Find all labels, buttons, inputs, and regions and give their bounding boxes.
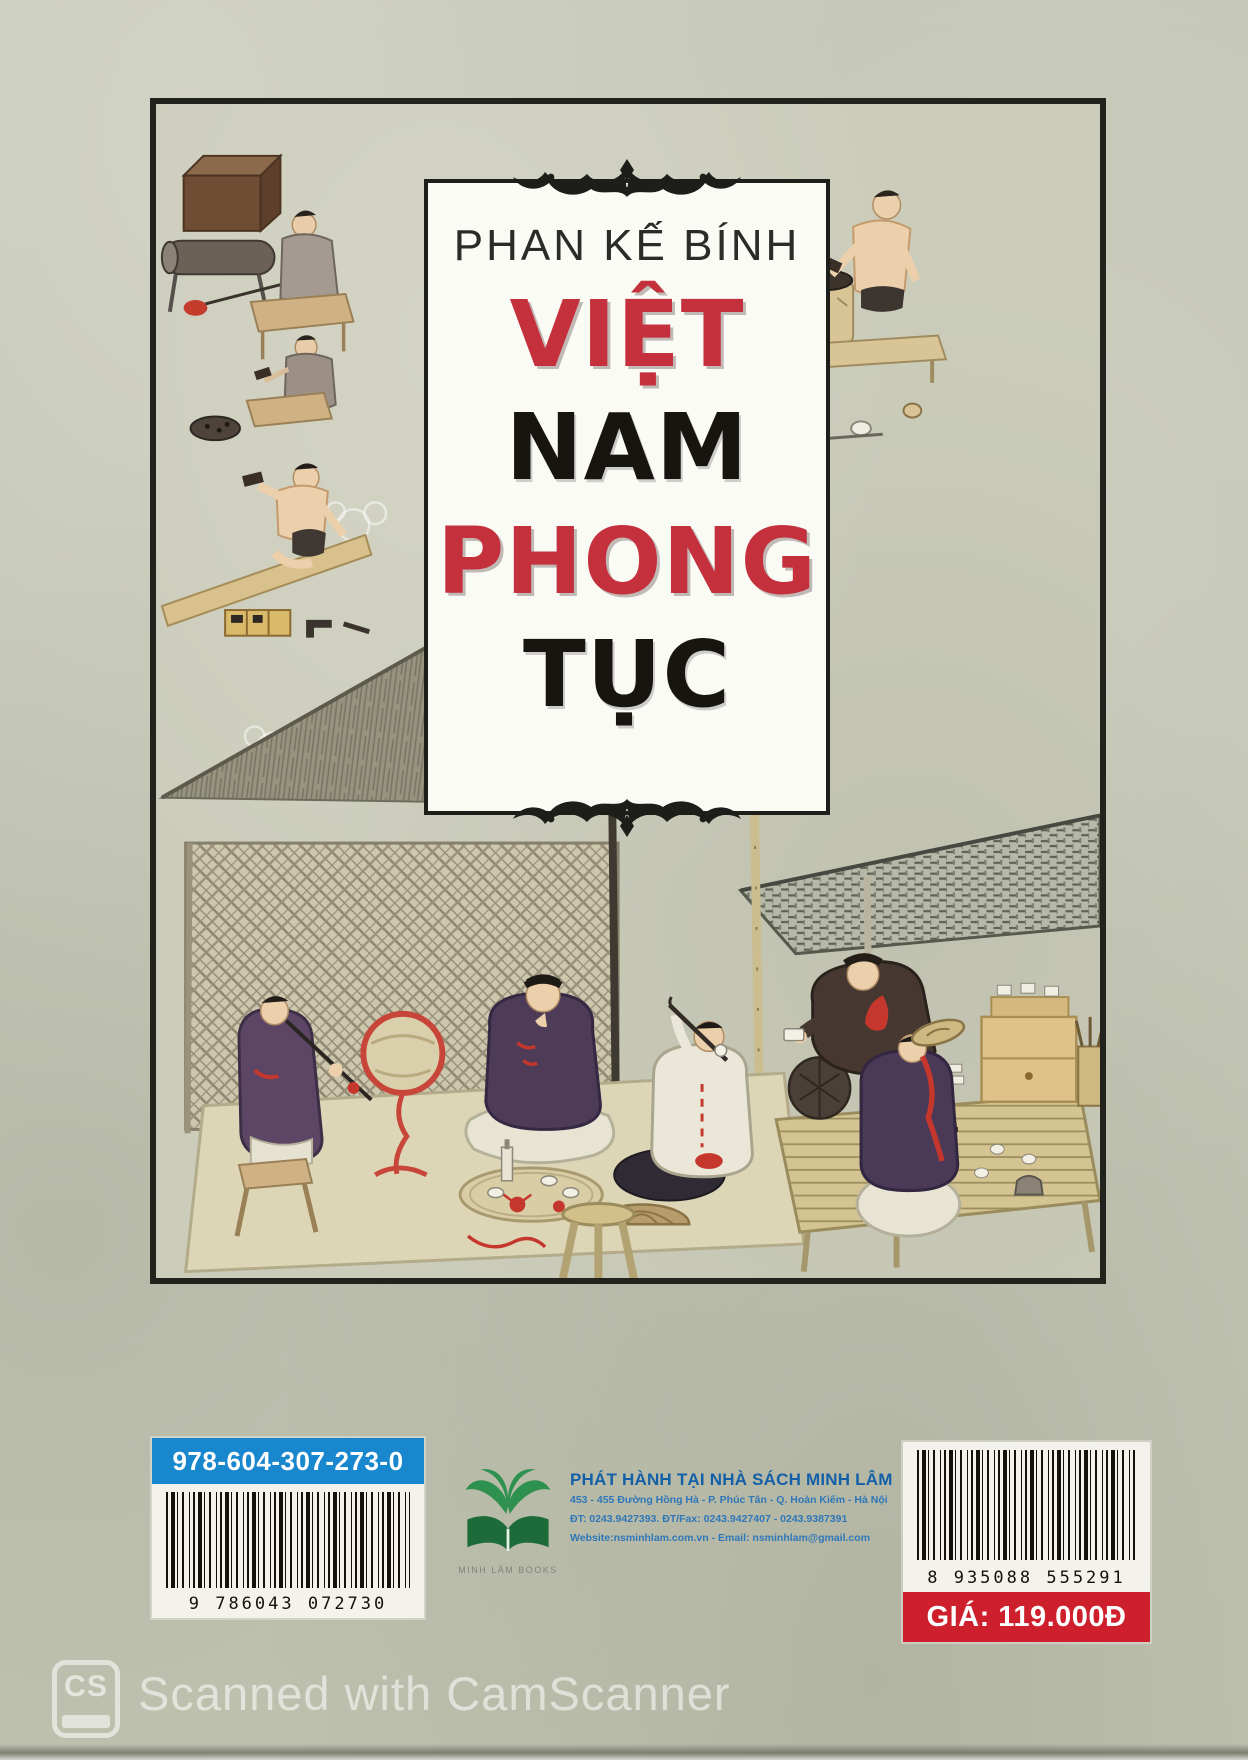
- title-word-phong: PHONG: [437, 512, 817, 611]
- publisher-website-line: Website:nsminhlam.com.vn - Email: nsminh…: [570, 1530, 893, 1547]
- product-barcode-digits: 8 935088 555291: [903, 1568, 1150, 1588]
- price-block: 8 935088 555291 GIÁ: 119.000Đ: [903, 1442, 1150, 1642]
- product-barcode-bars: [917, 1450, 1136, 1560]
- product-barcode: 8 935088 555291: [903, 1442, 1150, 1592]
- cover-border-frame: PHAN KẾ BÍNH VIỆT NAM PHONG TỤC: [150, 98, 1106, 1284]
- illustration-blacksmith-vignette: [162, 156, 354, 440]
- isbn-barcode: 9 786043 072730: [152, 1484, 424, 1618]
- title-panel: PHAN KẾ BÍNH VIỆT NAM PHONG TỤC: [424, 179, 830, 815]
- camscanner-logo-letters: CS: [57, 1670, 115, 1704]
- book-back-cover-scan: PHAN KẾ BÍNH VIỆT NAM PHONG TỤC 978-604-…: [0, 0, 1248, 1760]
- publisher-address-line: 453 - 455 Đường Hồng Hà - P. Phúc Tân - …: [570, 1492, 893, 1509]
- illustration-sawyer-vignette: [162, 463, 371, 637]
- isbn-number-bar: 978-604-307-273-0: [152, 1438, 424, 1484]
- publisher-info: PHÁT HÀNH TẠI NHÀ SÁCH MINH LÂM 453 - 45…: [570, 1466, 893, 1575]
- publisher-name-line: PHÁT HÀNH TẠI NHÀ SÁCH MINH LÂM: [570, 1470, 893, 1490]
- minh-lam-books-logo-icon: [456, 1466, 560, 1562]
- publisher-logo-caption: MINH LÂM BOOKS: [452, 1565, 564, 1575]
- isbn-barcode-digits: 9 786043 072730: [152, 1594, 424, 1614]
- publisher-block: MINH LÂM BOOKS PHÁT HÀNH TẠI NHÀ SÁCH MI…: [452, 1466, 907, 1575]
- price-bar: GIÁ: 119.000Đ: [903, 1592, 1150, 1642]
- isbn-barcode-bars: [166, 1492, 410, 1588]
- camscanner-logo-bar: [62, 1715, 110, 1728]
- publisher-logo: MINH LÂM BOOKS: [452, 1466, 564, 1575]
- ornament-bottom-icon: [495, 791, 759, 843]
- camscanner-logo-icon: CS: [52, 1660, 120, 1738]
- author-name: PHAN KẾ BÍNH: [454, 221, 801, 271]
- title-word-tuc: TỤC: [523, 625, 731, 724]
- title-word-viet: VIỆT: [509, 285, 744, 384]
- isbn-block: 978-604-307-273-0 9 786043 072730: [152, 1438, 424, 1618]
- ornament-top-icon: [495, 153, 759, 205]
- camscanner-watermark-text: Scanned with CamScanner: [138, 1666, 731, 1721]
- title-word-nam: NAM: [506, 398, 749, 497]
- publisher-phone-line: ĐT: 0243.9427393. ĐT/Fax: 0243.9427407 -…: [570, 1511, 893, 1528]
